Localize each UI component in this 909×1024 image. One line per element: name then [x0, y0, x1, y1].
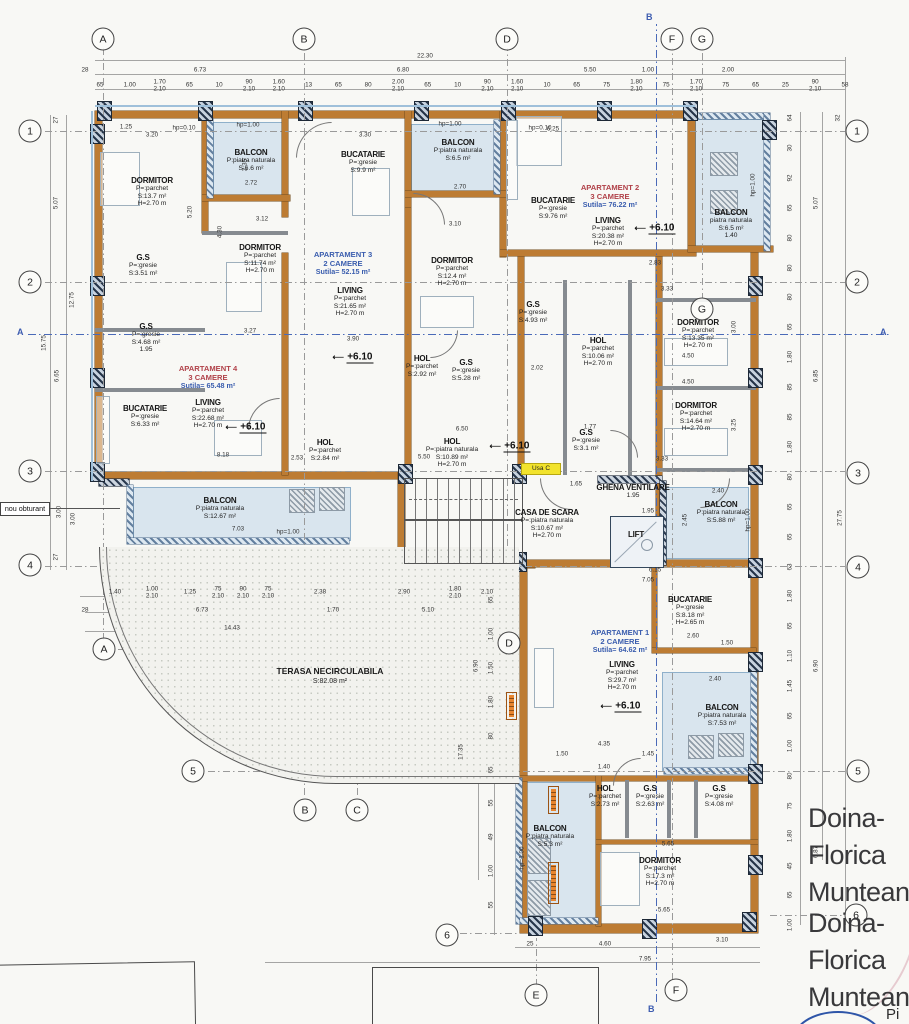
dimension-label: 1.602.10: [273, 79, 285, 92]
signature-line: Florica: [808, 837, 909, 874]
dimension-label: 1.702.10: [153, 79, 165, 92]
grid-bubble-5: 5: [182, 760, 205, 783]
dimension-label: 80: [788, 294, 795, 301]
room-label-balcon: BALCONP:piatra naturalaS:6.6 m²: [227, 148, 275, 172]
dimension-label: 6.90: [474, 660, 481, 672]
room-label-living: LIVINGP=:parchetS:20.38 m²H=2.70 m: [592, 216, 624, 248]
wall-exterior: [95, 472, 400, 479]
room-label-g-s: G.SP=:gresieS:3.1 m²: [572, 428, 600, 452]
dimension-label: 22.30: [417, 54, 433, 61]
room-label-hol: HOLP=:parchetS:10.06 m²H=2.70 m: [582, 336, 614, 368]
apartment-header: APARTAMENT 23 CAMERESutila= 76.22 m²: [581, 183, 639, 210]
structural-column: [748, 855, 763, 875]
room-label-g-s: G.SP=:gresieS:3.51 m²: [129, 253, 158, 277]
section-marker-b-bottom: B: [648, 1004, 655, 1014]
room-label-balcon: BALCONP:piatra naturalaS:5.3 m²: [526, 824, 574, 848]
dimension-line: [265, 962, 760, 963]
dimension-label: 65: [788, 533, 795, 540]
furniture-hatched: [688, 735, 714, 759]
room-label-bucatarie: BUCATARIEP=:gresieS:9.9 m²: [341, 150, 385, 174]
structural-column: [528, 916, 543, 936]
dimension-label: 6.15: [649, 568, 661, 575]
structural-column: [298, 101, 313, 121]
wall-partition: [667, 780, 671, 838]
dimension-label: 1.25: [120, 125, 132, 132]
dimension-label: 2.90: [398, 590, 410, 597]
balcony-parapet: [127, 485, 133, 543]
balcony-parapet: [127, 538, 349, 544]
floor-plan-page: TERASA NECIRCULABILA S:82.08 m² 22.30286…: [0, 0, 909, 1024]
dimension-label: 4.60: [599, 942, 611, 949]
room-label-g-s: G.SP=:gresieS:4.93 m²: [519, 300, 548, 324]
dimension-label: 1.65: [570, 482, 582, 489]
dimension-label: hp=1.00: [237, 123, 260, 130]
door-swing-arc: [540, 478, 572, 510]
dimension-label: 1.00: [788, 740, 795, 752]
dimension-label: 5.07: [54, 197, 61, 209]
dimension-label: 12.75: [70, 292, 77, 308]
room-label-g-s: G.SP=:gresieS:2.63 m²: [636, 784, 665, 808]
dimension-label: 92: [788, 174, 795, 181]
stair-walkline: [409, 499, 518, 500]
grid-bubble-b: B: [294, 799, 317, 822]
furniture-hatched: [289, 489, 315, 513]
dimension-label: 1.25: [184, 590, 196, 597]
grid-bubble-4: 4: [847, 556, 870, 579]
dimension-label: 1.00: [788, 919, 795, 931]
grid-bubble-2: 2: [19, 271, 42, 294]
dimension-label: 1.602.10: [511, 79, 523, 92]
wall-exterior: [596, 840, 758, 844]
room-label-hol: HOLP=:parchetS:2.84 m²: [309, 438, 341, 462]
dimension-label: 10: [216, 83, 223, 90]
dimension-label: 85: [788, 384, 795, 391]
dimension-label: hp=1.00: [439, 122, 462, 129]
dimension-label: 8.18: [217, 453, 229, 460]
dimension-label: 1.80: [788, 351, 795, 363]
dimension-label: 55: [489, 800, 496, 807]
dimension-label: 1.50: [489, 662, 496, 674]
titleblock-rect: [0, 961, 197, 1024]
room-label-g-s: G.SP=:gresieS:4.08 m²: [705, 784, 734, 808]
section-marker-b-top: B: [646, 12, 653, 22]
structural-column: [597, 101, 612, 121]
dimension-label: 65: [186, 83, 193, 90]
dimension-label: 65: [752, 83, 759, 90]
structural-column: [742, 912, 757, 932]
grid-bubble-3: 3: [19, 460, 42, 483]
signature-text-2: Doina- Florica Munteanu: [808, 905, 909, 1016]
room-label-dormitor: DORMITORP=:parchetS:11.74 m²H=2.70 m: [239, 243, 281, 275]
dimension-label: 25: [782, 83, 789, 90]
dimension-label: 1.00: [642, 68, 654, 75]
wall-partition: [563, 280, 567, 475]
grid-bubble-e: E: [525, 984, 548, 1007]
dimension-label: 45: [788, 862, 795, 869]
dimension-label: 3.33: [656, 457, 668, 464]
dimension-label: 17.35: [459, 744, 466, 760]
terrace-label: TERASA NECIRCULABILA: [277, 666, 384, 676]
dimension-label: 1.10: [788, 650, 795, 662]
door-swing-arc: [413, 193, 445, 225]
nou-obturant-label: nou obturant: [0, 502, 50, 516]
dimension-label: hp=0.10: [173, 126, 196, 133]
grid-line: [460, 933, 518, 934]
dimension-label: 2.38: [314, 590, 326, 597]
dimension-label: 63: [788, 563, 795, 570]
dimension-label: 75: [663, 83, 670, 90]
room-label-dormitor: DORMITORP=:parchetS:13.7 m²H=2.70 m: [131, 176, 173, 208]
dimension-label: 80: [788, 234, 795, 241]
structural-column: [748, 764, 763, 784]
dimension-label: 65: [788, 892, 795, 899]
dimension-label: 15.75: [42, 335, 49, 351]
dimension-label: 1.702.10: [690, 79, 702, 92]
room-label-bucatarie: BUCATARIEP=:gresieS:8.18 m²H=2.65 m: [668, 595, 712, 627]
dimension-label: 2.002.10: [392, 79, 404, 92]
dimension-label: 1.45: [642, 752, 654, 759]
furniture-hatched: [319, 487, 345, 511]
door-swing-arc: [296, 122, 332, 158]
dimension-label: 55: [489, 902, 496, 909]
dimension-line: [515, 947, 760, 948]
room-label-living: LIVINGP=:parchetS:21.65 m²H=2.70 m: [334, 286, 366, 318]
dimension-label: 7.95: [639, 957, 651, 964]
dimension-label: 1.80: [788, 590, 795, 602]
dimension-label: 2.60: [687, 634, 699, 641]
grid-bubble-f: F: [661, 28, 684, 51]
room-label-hol: HOLP=:parchetS:2.73 m²: [589, 784, 621, 808]
dimension-label: 2.53: [291, 456, 303, 463]
grid-bubble-1: 1: [846, 120, 869, 143]
dimension-label: 1.00: [124, 83, 136, 90]
signature-partial: Pi: [886, 1006, 899, 1023]
room-label-hol: HOLP=:piatra naturalaS:10.89 m²H=2.70 m: [426, 437, 478, 469]
lift-circle: [641, 539, 653, 551]
room-label-dormitor: DORMITORP=:parchetS:17.3 m²H=2.70 m: [639, 856, 681, 888]
dimension-label: 10: [543, 83, 550, 90]
wall-exterior: [500, 250, 696, 256]
dimension-label: 27: [54, 553, 61, 560]
wall-exterior: [282, 111, 288, 217]
dimension-label: 2.45: [683, 514, 690, 526]
wall-exterior: [520, 924, 758, 933]
dimension-label: 65: [424, 83, 431, 90]
grid-line: [45, 471, 845, 472]
grid-bubble-3: 3: [847, 462, 870, 485]
dimension-label: hp=1.00: [746, 509, 753, 532]
titleblock-rect: [372, 967, 599, 1024]
room-label-lift: LIFT: [628, 530, 644, 539]
wall-partition: [625, 780, 629, 838]
dimension-label: 2.83: [649, 261, 661, 268]
dimension-label: 2.72: [245, 181, 257, 188]
apartment-header: APARTAMENT 43 CAMERESutila= 65.48 m²: [179, 364, 237, 391]
dimension-label: 3.27: [244, 329, 256, 336]
dimension-label: 80: [489, 732, 496, 739]
wall-partition: [694, 780, 698, 838]
dimension-label: 1.50: [721, 641, 733, 648]
dimension-label: hp=1.00: [277, 530, 300, 537]
dimension-label: 3.12: [256, 217, 268, 224]
dimension-label: 4.50: [682, 354, 694, 361]
grid-bubble-4: 4: [19, 554, 42, 577]
dimension-label: 80: [788, 772, 795, 779]
furniture-outline: [420, 296, 474, 328]
dimension-label: 2.40: [709, 677, 721, 684]
dimension-label: 14.43: [224, 626, 240, 633]
grid-bubble-1: 1: [19, 120, 42, 143]
dimension-label: 65: [788, 623, 795, 630]
room-label-g-s: G.SP=:gresieS:5.28 m²: [452, 358, 481, 382]
grid-bubble-d: D: [498, 632, 521, 655]
grid-bubble-2: 2: [846, 271, 869, 294]
dimension-label: 10: [454, 83, 461, 90]
dimension-label: 902.10: [243, 79, 255, 92]
dimension-label: 1.40: [598, 765, 610, 772]
dimension-label: 7.05: [642, 578, 654, 585]
furniture-outline: [516, 116, 562, 166]
door-swing-arc: [610, 430, 638, 458]
level-marker: ⟵ +6.10: [489, 441, 530, 452]
dimension-line: [845, 57, 846, 925]
grid-bubble-d: D: [496, 28, 519, 51]
dimension-label: hp=1.00: [520, 847, 527, 870]
dimension-label: 5.20: [188, 206, 195, 218]
dimension-label: 65: [489, 596, 496, 603]
dimension-label: 902.10: [809, 79, 821, 92]
grid-bubble-g: G: [691, 298, 714, 321]
dimension-label: 3.25: [732, 419, 739, 431]
dimension-label: 65: [96, 83, 103, 90]
dimension-label: 49: [489, 834, 496, 841]
dimension-line: [66, 115, 67, 570]
dimension-label: 3.33: [661, 287, 673, 294]
dimension-label: 1.95: [642, 509, 654, 516]
apartment-header: APARTAMENT 32 CAMERESutila= 52.15 m²: [314, 250, 372, 277]
room-label-casa-de-scara: CASA DE SCARAP=:piatra naturalaS:10.67 m…: [515, 508, 579, 540]
dimension-label: 13: [305, 83, 312, 90]
signature-line: Doina-: [808, 905, 909, 942]
dimension-label: hp=1.00: [751, 174, 758, 197]
room-label-living: LIVINGP=:parchetS:22.68 m²H=2.70 m: [192, 398, 224, 430]
dimension-label: 3.30: [359, 133, 371, 140]
lift-shaft: [610, 516, 664, 568]
structural-column: [97, 101, 112, 121]
level-marker: ⟵ +6.10: [225, 422, 266, 433]
balcony-parapet: [751, 664, 757, 774]
dimension-label: 65: [489, 766, 496, 773]
dimension-line: [822, 112, 823, 860]
wall-hatched: [598, 476, 662, 483]
dimension-label: 65: [335, 83, 342, 90]
dimension-label: 85: [788, 413, 795, 420]
room-label-dormitor: DORMITORP=:parchetS:12.4 m²H=2.70 m: [431, 256, 473, 288]
dimension-label: 6.73: [194, 68, 206, 75]
dimension-label: 27.75: [838, 510, 845, 526]
dimension-label: 1.00: [489, 865, 496, 877]
nou-obturant-leader: [48, 508, 120, 509]
room-label-balcon: BALCONP:piatra naturalaS:7.53 m²: [698, 703, 746, 727]
wall-exterior: [405, 205, 411, 475]
furniture-hatched: [718, 733, 744, 757]
dimension-label: 6.80: [397, 68, 409, 75]
signature-line: Doina-: [808, 800, 909, 837]
apartment-header: APARTAMENT 12 CAMERESutila= 64.62 m²: [591, 628, 649, 655]
dimension-label: 902.10: [481, 79, 493, 92]
structural-column: [501, 101, 516, 121]
signature-line: Florica: [808, 942, 909, 979]
dimension-label: 1.80: [788, 441, 795, 453]
dimension-label: 6.50: [456, 427, 468, 434]
dimension-label: 1.802.10: [449, 586, 461, 599]
dimension-label: 1.002.10: [146, 586, 158, 599]
dimension-label: 752.10: [212, 586, 224, 599]
facade-glazing-line: [95, 105, 695, 107]
room-label-ghena-ventilare: GHENA VENTILARE1.95: [596, 483, 669, 500]
structural-column: [748, 652, 763, 672]
dimension-label: 5.10: [422, 608, 434, 615]
structural-column: [748, 558, 763, 578]
structural-column: [748, 368, 763, 388]
dimension-label: 1.45: [788, 680, 795, 692]
dimension-label: 80: [365, 83, 372, 90]
wall-partition: [202, 231, 288, 235]
dimension-label: 6.85: [814, 370, 821, 382]
door-tag-usa-c: Usa C: [521, 463, 561, 475]
structural-column: [748, 276, 763, 296]
level-marker: ⟵ +6.10: [332, 352, 373, 363]
room-label-bucatarie: BUCATARIEP=:gresieS:6.33 m²: [123, 404, 167, 428]
wall-exterior: [688, 246, 773, 252]
dimension-line: [50, 115, 51, 570]
door-swing-arc: [613, 758, 641, 786]
room-label-balcon: BALCONP:piatra naturalaS:5.88 m²: [697, 500, 745, 524]
dimension-label: 1.802.10: [630, 79, 642, 92]
dimension-label: 5.65: [662, 842, 674, 849]
dimension-label: 2.10: [481, 590, 493, 597]
grid-bubble-b: B: [293, 28, 316, 51]
room-label-bucatarie: BUCATARIEP=:gresieS:9.76 m²: [531, 196, 575, 220]
dimension-label: 752.10: [262, 586, 274, 599]
dimension-label: 3.00: [732, 321, 739, 333]
wall-exterior: [688, 111, 695, 251]
dimension-label: 3.20: [146, 133, 158, 140]
dimension-label: 80: [788, 264, 795, 271]
room-label-balcon: BALCONpiatra naturalaS:6.5 m²1.40: [710, 208, 752, 240]
dimension-label: 25: [526, 942, 533, 949]
structural-column: [198, 101, 213, 121]
room-label-dormitor: DORMITORP=:parchetS:14.64 m²H=2.70 m: [675, 401, 717, 433]
dimension-label: 1.40: [109, 590, 121, 597]
dimension-label: 65: [788, 324, 795, 331]
terrace-area-label: S:82.08 m²: [313, 678, 347, 685]
dimension-label: 1.50: [556, 752, 568, 759]
dimension-label: 5.07: [814, 197, 821, 209]
dimension-label: 58: [841, 83, 848, 90]
room-label-living: LIVINGP=:parchetS:29.7 m²H=2.70 m: [606, 660, 638, 692]
dimension-label: 75: [603, 83, 610, 90]
dimension-label: 75: [722, 83, 729, 90]
dimension-label: 27: [54, 116, 61, 123]
dimension-line: [800, 112, 801, 925]
dimension-label: 3.90: [347, 337, 359, 344]
structural-column: [748, 465, 763, 485]
dimension-label: 3.10: [716, 938, 728, 945]
dimension-label: 28: [81, 68, 88, 75]
dimension-label: 65: [788, 204, 795, 211]
dimension-label: 2.40: [712, 489, 724, 496]
window-tag: [506, 692, 517, 720]
structural-column: [642, 919, 657, 939]
level-marker: ⟵ +6.10: [600, 701, 641, 712]
dimension-label: 2.02: [531, 366, 543, 373]
dimension-label: 6.90: [814, 660, 821, 672]
dimension-label: 80: [788, 473, 795, 480]
dimension-label: 4.30: [218, 226, 225, 238]
dimension-label: 5.50: [584, 68, 596, 75]
grid-bubble-c: C: [346, 799, 369, 822]
dimension-label: 4.50: [682, 380, 694, 387]
signature-text-1: Doina- Florica Munteanu: [808, 800, 909, 911]
room-label-g-s: G.SP=:gresieS:4.68 m²1.95: [132, 322, 161, 354]
dimension-label: 6.73: [196, 608, 208, 615]
dimension-label: 1.00: [489, 628, 496, 640]
stair-rail: [405, 519, 522, 521]
grid-bubble-5: 5: [847, 760, 870, 783]
dimension-label: hp=0.10: [529, 126, 552, 133]
grid-line: [702, 48, 703, 300]
balcony-parapet: [207, 118, 213, 198]
structural-column: [762, 120, 777, 140]
wall-exterior: [652, 648, 756, 653]
dimension-label: 3.00: [71, 513, 78, 525]
wall-exterior: [202, 195, 290, 201]
room-label-balcon: BALCONP:piatra naturalaS:12.67 m²: [196, 496, 244, 520]
dimension-line: [95, 89, 845, 90]
dimension-label: 65: [788, 503, 795, 510]
dimension-line: [95, 60, 845, 61]
furniture-outline: [534, 648, 554, 708]
terrace-inner-line: [106, 547, 519, 777]
furniture-hatched: [710, 152, 738, 176]
dimension-label: 1.70: [327, 608, 339, 615]
dimension-label: 1.80: [489, 696, 496, 708]
dimension-label: 30: [788, 144, 795, 151]
staircase: [404, 478, 523, 564]
facade-glazing-line: [91, 111, 93, 481]
room-label-hol: HOLP=:parchetS:2.92 m²: [406, 354, 438, 378]
window-tag: [548, 786, 559, 814]
wall-partition: [656, 386, 756, 390]
dimension-label: 75: [788, 802, 795, 809]
dimension-label: 6.65: [55, 370, 62, 382]
dimension-label: 28: [81, 608, 88, 615]
grid-bubble-f: F: [665, 979, 688, 1002]
dimension-label: 32: [836, 114, 843, 121]
dimension-label: 5.65: [658, 908, 670, 915]
dimension-label: 3.10: [449, 222, 461, 229]
structural-column: [683, 101, 698, 121]
section-marker-a-right: A: [880, 327, 887, 337]
grid-bubble-a: A: [92, 28, 115, 51]
grid-line: [45, 131, 845, 132]
wall-exterior: [282, 253, 288, 475]
dimension-label: 1.80: [788, 829, 795, 841]
dimension-label: 4.35: [598, 742, 610, 749]
room-label-balcon: BALCONP:piatra naturalaS:6.5 m²: [434, 138, 482, 162]
grid-bubble-a: A: [93, 638, 116, 661]
